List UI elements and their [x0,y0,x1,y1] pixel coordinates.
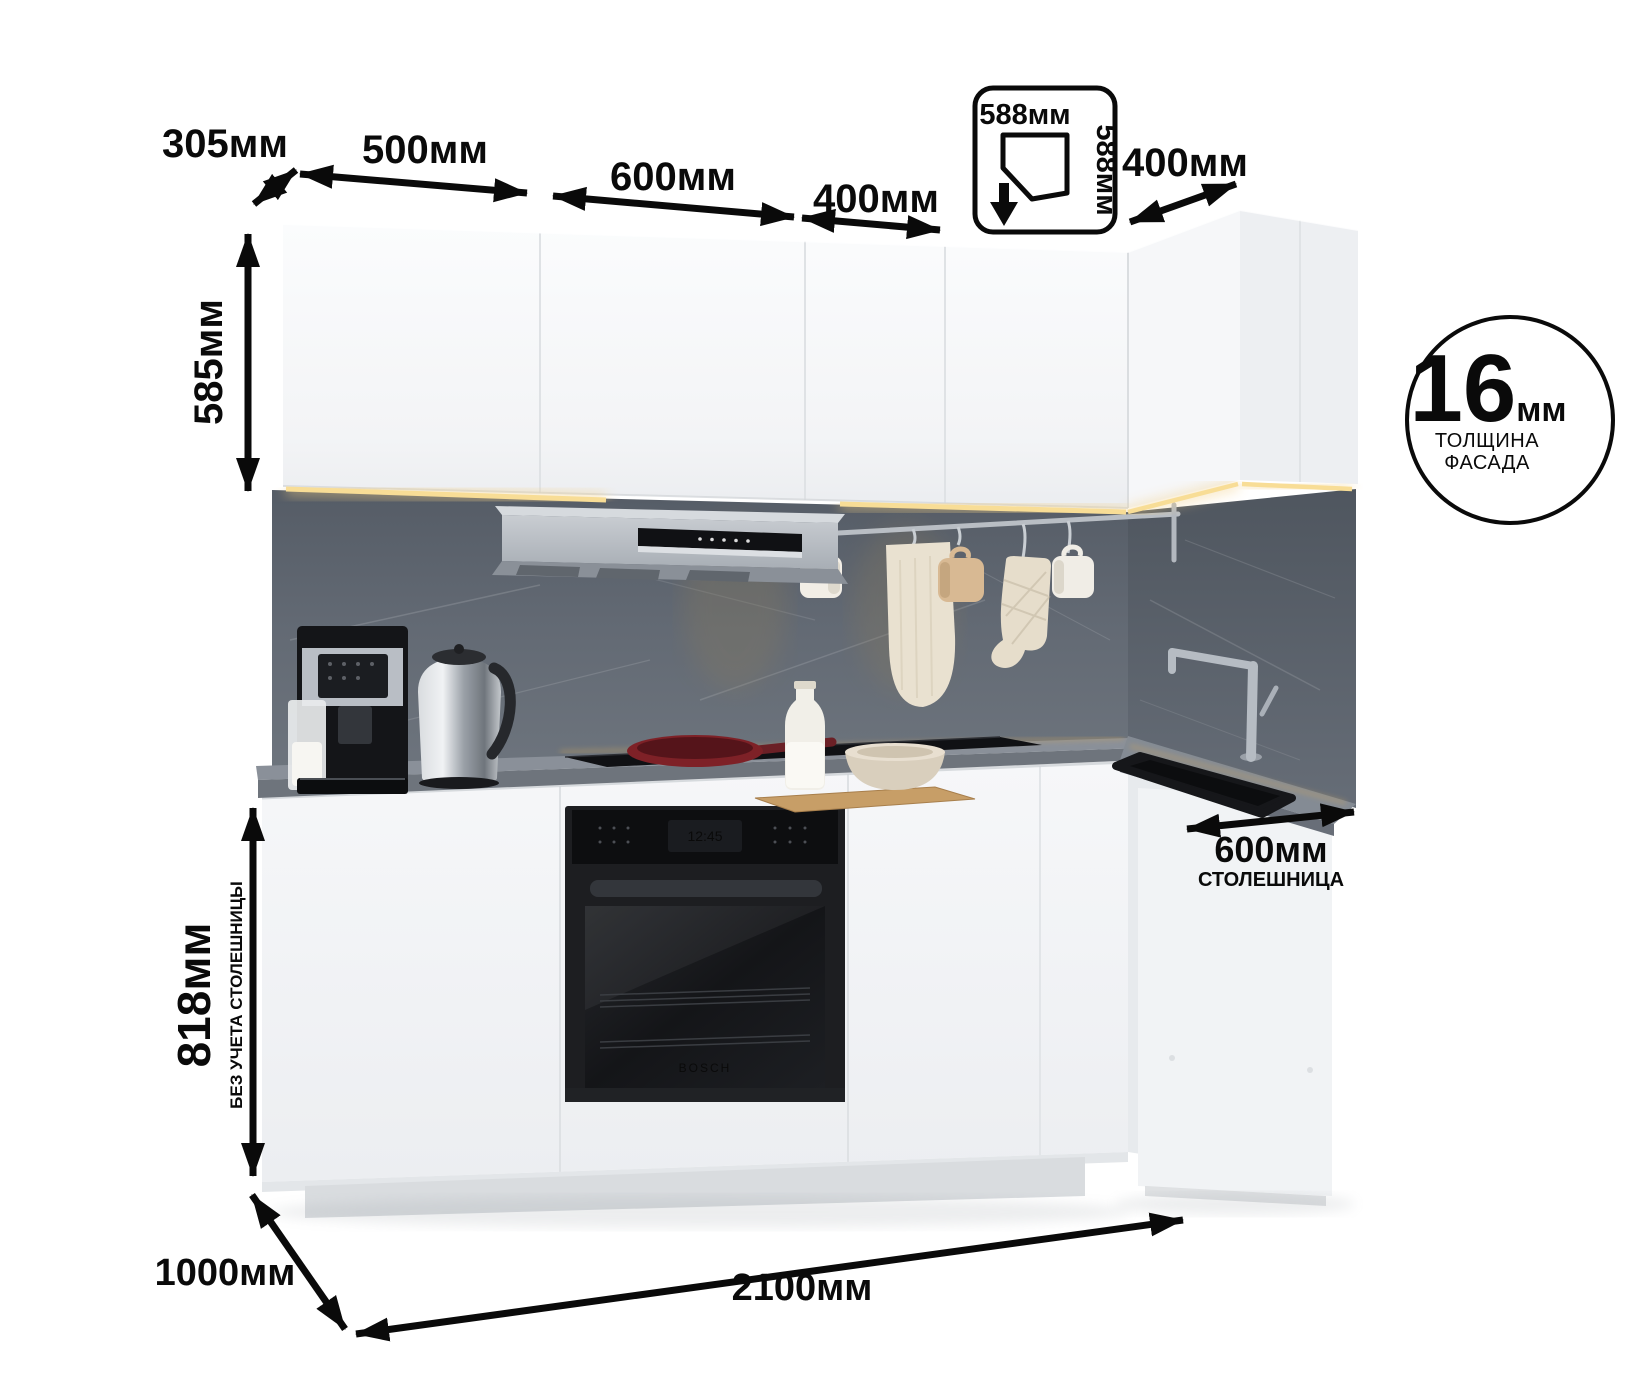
kitchen-scene-svg: 12:45 BOSCH [0,0,1632,1400]
dim-500-arrow [300,174,527,193]
dim-1000-label: 1000мм [155,1252,296,1294]
range-hood [492,506,848,584]
dim-585: 585мм [187,234,248,491]
upper-cabinets [283,210,1358,508]
corner-cabinet-icon: 588мм 588мм [975,88,1122,232]
facade-thickness-badge: 16мм ТОЛЩИНА ФАСАДА [1407,317,1613,523]
dim-2100: 2100мм [356,1220,1183,1334]
kitchen-scene: 12:45 BOSCH [256,210,1358,1228]
dim-400-right-arrow [1130,184,1236,222]
oven-display-time: 12:45 [687,828,722,844]
facade-badge-caption-1: ТОЛЩИНА [1435,430,1539,452]
dim-500-label: 500мм [362,128,488,172]
coffee-machine [288,626,408,794]
oven-brand-label: BOSCH [679,1061,732,1075]
dim-818-note: БЕЗ УЧЕТА СТОЛЕШНИЦЫ [227,881,246,1109]
dim-305-label: 305мм [162,122,288,166]
dim-400-top: 400мм [802,177,940,230]
corner-icon-width-label: 588мм [979,99,1070,131]
dim-585-label: 585мм [187,299,231,425]
dim-500: 500мм [300,128,527,193]
dim-400-right: 400мм [1122,141,1248,222]
dim-305: 305мм [162,122,296,204]
upper-cabinet-front [283,224,1128,508]
facade-badge-number: 16 [1409,335,1516,442]
dim-400-top-label: 400мм [813,177,939,221]
dim-305-arrow [254,170,296,204]
facade-badge-caption-2: ФАСАДА [1444,452,1530,474]
dim-818: 818мм БЕЗ УЧЕТА СТОЛЕШНИЦЫ [168,808,253,1176]
kettle [418,644,510,789]
dim-2100-label: 2100мм [732,1267,873,1309]
dim-600-top-label: 600мм [610,155,736,199]
facade-badge-unit: мм [1516,391,1566,429]
dim-818-label: 818мм [168,923,220,1068]
coffee-machine-display [318,654,388,698]
dim-400-right-label: 400мм [1122,141,1248,185]
dim-600-right-label: 600мм [1214,829,1327,870]
dim-600-top-arrow [553,196,794,217]
corner-icon-depth-label: 588мм [1090,124,1122,215]
upper-cabinet-corner-face [1128,210,1240,508]
dim-600-top: 600мм [553,155,794,217]
coffee-spout [338,706,372,744]
kitchen-dimension-diagram: 12:45 BOSCH [0,0,1632,1400]
oven: 12:45 BOSCH [565,806,845,1102]
oven-handle [590,880,822,897]
dim-600-right-note: СТОЛЕШНИЦА [1198,869,1344,891]
